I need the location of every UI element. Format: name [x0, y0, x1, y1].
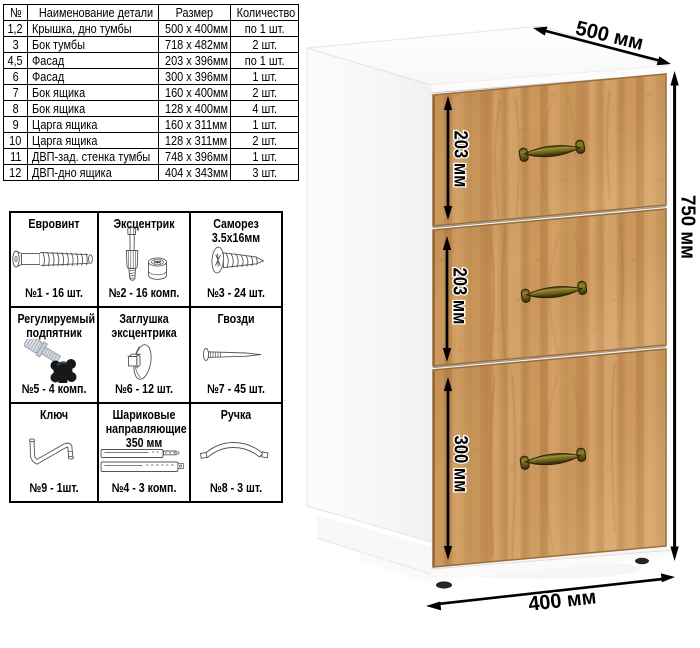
svg-text:203 мм: 203 мм: [450, 131, 472, 188]
svg-text:203 мм: 203 мм: [449, 268, 471, 325]
svg-text:750 мм: 750 мм: [677, 195, 699, 259]
svg-text:300 мм: 300 мм: [450, 436, 472, 493]
svg-text:400 мм: 400 мм: [527, 585, 597, 616]
